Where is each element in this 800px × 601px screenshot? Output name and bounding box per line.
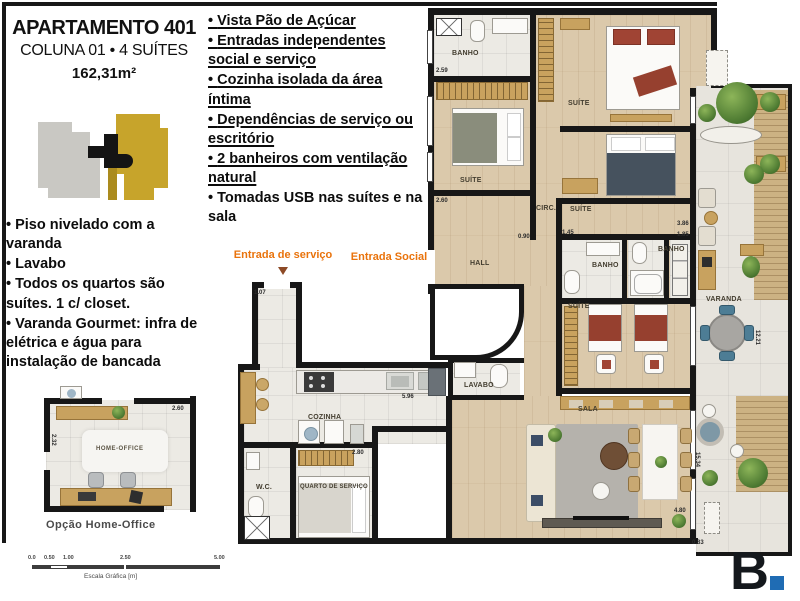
brand-logo-dot bbox=[770, 576, 784, 590]
bed-suite1 bbox=[452, 108, 524, 166]
closet-rack bbox=[538, 18, 554, 102]
plant bbox=[698, 104, 716, 122]
plant bbox=[744, 164, 764, 184]
feature-item: Todos os quartos são suítes. 1 c/ closet… bbox=[6, 275, 208, 313]
room-label-banho2: BANHO bbox=[592, 262, 619, 269]
feature-item: Tomadas USB nas suítes e na sala bbox=[208, 189, 424, 227]
wall bbox=[296, 362, 450, 368]
sofa-pillow bbox=[531, 435, 543, 446]
toilet bbox=[632, 242, 647, 264]
hammock bbox=[700, 126, 762, 144]
patio-chair bbox=[744, 325, 754, 341]
scale-bar: 0.0 0.50 1.00 2.50 5.00 Escala Gráfica [… bbox=[28, 552, 228, 582]
social-entrance-door bbox=[427, 250, 435, 284]
bathtub bbox=[630, 270, 664, 296]
feature-item: Vista Pão de Açúcar bbox=[208, 12, 424, 31]
feature-item: Entradas independentes social e serviço bbox=[208, 32, 424, 70]
dining-chair bbox=[680, 476, 692, 492]
window bbox=[427, 30, 433, 64]
water-heater bbox=[350, 424, 364, 444]
service-entrance-label: Entrada de serviço bbox=[226, 249, 340, 261]
wall bbox=[372, 426, 378, 544]
dimension: 2.60 bbox=[436, 198, 448, 204]
service-entrance-door bbox=[264, 281, 290, 289]
tv-console bbox=[542, 518, 662, 528]
sink-counter bbox=[586, 242, 620, 256]
feature-item: 2 banheiros com ventilação natural bbox=[208, 150, 424, 188]
shower-box bbox=[436, 18, 462, 36]
frame-top bbox=[2, 2, 717, 6]
room-label-banho3: BANHO bbox=[658, 246, 685, 253]
room-label-suite4: SUÍTE bbox=[568, 303, 590, 310]
bed-blanket bbox=[299, 483, 351, 533]
office-chair bbox=[88, 472, 104, 488]
feature-item: Piso nivelado com a varanda bbox=[6, 216, 208, 254]
bed-suite3 bbox=[606, 134, 676, 196]
home-office-caption: Opção Home-Office bbox=[46, 519, 156, 531]
dining-chair bbox=[628, 428, 640, 444]
dimension: 4.80 bbox=[674, 508, 686, 514]
laundry-cabinet bbox=[324, 420, 344, 444]
bbq-cart bbox=[698, 250, 716, 290]
feature-item: Dependências de serviço ou escritório bbox=[208, 111, 424, 149]
wall bbox=[446, 538, 698, 544]
tv bbox=[573, 516, 629, 520]
feature-item: Varanda Gourmet: infra de elétrica e águ… bbox=[6, 315, 208, 372]
cushion bbox=[602, 360, 611, 369]
pouf bbox=[730, 444, 744, 458]
wall bbox=[190, 396, 196, 512]
sink bbox=[246, 452, 260, 470]
bed-blanket bbox=[635, 315, 667, 341]
kitchen-table bbox=[240, 372, 256, 424]
scale-tick: 0.0 bbox=[28, 555, 36, 561]
room-label-cozinha: COZINHA bbox=[308, 414, 341, 421]
fire-pit bbox=[696, 418, 724, 446]
plant bbox=[548, 428, 562, 442]
lounge-chair bbox=[698, 188, 716, 208]
patio-chair bbox=[719, 351, 735, 361]
centerpiece-plant bbox=[655, 456, 667, 468]
plant bbox=[742, 256, 760, 278]
feature-item: Lavabo bbox=[6, 255, 208, 274]
room-label-varanda: VARANDA bbox=[706, 296, 742, 303]
room-label-banho1: BANHO bbox=[452, 50, 479, 57]
wall bbox=[556, 388, 696, 394]
toilet bbox=[470, 20, 485, 42]
wall bbox=[560, 234, 694, 240]
dimension: 1.45 bbox=[562, 230, 574, 236]
plant bbox=[672, 514, 686, 528]
wall bbox=[448, 395, 524, 400]
wall bbox=[560, 126, 694, 132]
varanda-rail bbox=[788, 84, 792, 556]
scale-segment bbox=[32, 565, 50, 569]
palm-plant bbox=[716, 82, 758, 124]
social-entrance-label: Entrada Social bbox=[348, 251, 430, 263]
window bbox=[427, 152, 433, 182]
area-rug bbox=[556, 424, 638, 524]
scale-segment bbox=[68, 565, 124, 569]
bed-blanket bbox=[607, 153, 675, 195]
wall bbox=[428, 8, 717, 15]
bed-pillow bbox=[507, 137, 521, 161]
window bbox=[427, 96, 433, 146]
dimension: 2.59 bbox=[436, 68, 448, 74]
scale-tick: 1.00 bbox=[63, 555, 74, 561]
exterior-notch bbox=[430, 284, 524, 360]
dimension: 2.80 bbox=[352, 450, 364, 456]
feature-item: Cozinha isolada da área íntima bbox=[208, 71, 424, 109]
scale-segment bbox=[50, 565, 68, 569]
grill bbox=[702, 257, 712, 267]
office-desk bbox=[60, 488, 172, 506]
wall bbox=[290, 448, 296, 542]
keyplan-grey-shape bbox=[38, 122, 100, 198]
dimension: 3.86 bbox=[677, 221, 689, 227]
room-label-suite3: SUÍTE bbox=[570, 206, 592, 213]
patio-chair bbox=[719, 305, 735, 315]
kitchen-sink bbox=[386, 372, 414, 390]
window bbox=[690, 96, 696, 124]
bed-pillow bbox=[647, 29, 675, 45]
room-label-sala: SALA bbox=[578, 406, 598, 413]
armchair bbox=[644, 354, 664, 374]
closet-shelf bbox=[560, 18, 590, 30]
room-label-hall: HALL bbox=[470, 260, 489, 267]
room-label-lavabo: LAVABO bbox=[464, 382, 494, 389]
home-office-thumbnail: HOME-OFFICE 2.32 2.60 bbox=[30, 392, 215, 516]
floor-service-corridor bbox=[258, 288, 296, 368]
bed-blanket bbox=[589, 315, 621, 341]
laptop bbox=[129, 490, 143, 504]
patio-chair bbox=[700, 325, 710, 341]
side-table bbox=[704, 211, 718, 225]
dimension: 1.85 bbox=[677, 232, 689, 238]
brand-logo-letter: B bbox=[730, 550, 767, 592]
bed-pillow bbox=[352, 485, 366, 533]
scale-bar-label: Escala Gráfica [m] bbox=[84, 573, 137, 580]
dimension: 2.60 bbox=[172, 406, 184, 412]
wall bbox=[556, 198, 694, 204]
closet-rack bbox=[564, 306, 578, 386]
sofa-pillow bbox=[531, 495, 543, 506]
stool bbox=[256, 378, 269, 391]
plant bbox=[760, 92, 780, 112]
header: APARTAMENTO 401 COLUNA 01 • 4 SUÍTES 162… bbox=[4, 18, 204, 82]
burner bbox=[309, 376, 313, 380]
twin-bed-1 bbox=[588, 304, 622, 352]
wall bbox=[446, 396, 452, 544]
dining-chair bbox=[680, 428, 692, 444]
cushion bbox=[650, 360, 659, 369]
dimension: 15.34 bbox=[694, 452, 700, 467]
stool bbox=[256, 398, 269, 411]
scale-tick: 2.50 bbox=[120, 555, 131, 561]
scale-tick: 0.50 bbox=[44, 555, 55, 561]
wall bbox=[238, 538, 452, 544]
dimension: 0.83 bbox=[692, 540, 704, 546]
armchair bbox=[596, 354, 616, 374]
room-label-circ: CIRC. bbox=[536, 205, 556, 212]
monitor bbox=[78, 492, 96, 501]
stove bbox=[304, 372, 334, 392]
sink-counter bbox=[492, 18, 528, 34]
bed-pillow bbox=[645, 137, 675, 151]
closet-rack bbox=[298, 450, 354, 466]
floor-corridor-social bbox=[524, 286, 556, 398]
washer bbox=[60, 386, 82, 399]
wall bbox=[622, 240, 627, 302]
dresser bbox=[562, 178, 598, 194]
shower-box bbox=[244, 516, 270, 540]
home-office-label: HOME-OFFICE bbox=[96, 446, 144, 452]
wall bbox=[372, 426, 452, 432]
bed-bench bbox=[610, 114, 672, 122]
keyplan-graphic bbox=[28, 112, 178, 206]
bed-blanket bbox=[453, 113, 497, 163]
dimension: 2.32 bbox=[50, 434, 56, 446]
sink-basin bbox=[391, 376, 409, 387]
washer bbox=[298, 420, 320, 444]
sink-counter bbox=[454, 362, 476, 378]
room-label-suite2: SUÍTE bbox=[568, 100, 590, 107]
scale-segment bbox=[126, 565, 220, 569]
feature-list-left: Piso nivelado com a varanda Lavabo Todos… bbox=[6, 216, 208, 373]
plant bbox=[112, 406, 125, 419]
wall bbox=[44, 506, 164, 512]
toilet bbox=[564, 270, 580, 294]
wall bbox=[296, 282, 302, 368]
washer-door bbox=[67, 389, 76, 398]
office-chair bbox=[120, 472, 136, 488]
closet-rack bbox=[436, 82, 528, 100]
wall bbox=[428, 190, 534, 196]
planter-box bbox=[740, 244, 764, 256]
side-table bbox=[592, 482, 610, 500]
bed-pillow bbox=[613, 29, 641, 45]
apartment-area: 162,31m² bbox=[4, 65, 204, 82]
tub-inner bbox=[634, 274, 662, 294]
page-title: APARTAMENTO 401 bbox=[4, 18, 204, 39]
dimension: 12.21 bbox=[754, 330, 760, 345]
room-label-quarto-servico: QUARTO DE SERVIÇO bbox=[300, 484, 368, 490]
dimension: 5.96 bbox=[402, 394, 414, 400]
pouf bbox=[702, 404, 716, 418]
furniture-outline bbox=[704, 502, 720, 534]
ac-unit-outline bbox=[706, 50, 728, 86]
coffee-table bbox=[600, 442, 628, 470]
fridge bbox=[428, 368, 446, 396]
dining-chair bbox=[628, 476, 640, 492]
round-table bbox=[708, 314, 746, 352]
bed-pillow bbox=[507, 113, 521, 137]
plant bbox=[738, 458, 768, 488]
bed-master bbox=[606, 26, 680, 110]
scale-tick: 5.00 bbox=[214, 555, 225, 561]
feature-list-top: Vista Pão de Açúcar Entradas independent… bbox=[208, 12, 424, 228]
room-label-suite1: SUÍTE bbox=[460, 177, 482, 184]
washer-door bbox=[304, 427, 318, 441]
room-label-wc: W.C. bbox=[256, 484, 272, 491]
dining-chair bbox=[628, 452, 640, 468]
bed-pillow bbox=[611, 137, 641, 151]
dining-table bbox=[642, 424, 678, 500]
page-subtitle: COLUNA 01 • 4 SUÍTES bbox=[4, 42, 204, 60]
toilet bbox=[248, 496, 264, 518]
service-entrance-arrow-icon bbox=[278, 267, 288, 275]
window bbox=[690, 306, 696, 366]
dimension: 1.07 bbox=[254, 290, 266, 296]
dining-chair bbox=[680, 452, 692, 468]
dimension: 0.90 bbox=[518, 234, 530, 240]
wall bbox=[134, 398, 196, 404]
bed-throw bbox=[633, 65, 677, 96]
lounge-chair bbox=[698, 226, 716, 246]
plant bbox=[702, 470, 718, 486]
twin-bed-2 bbox=[634, 304, 668, 352]
